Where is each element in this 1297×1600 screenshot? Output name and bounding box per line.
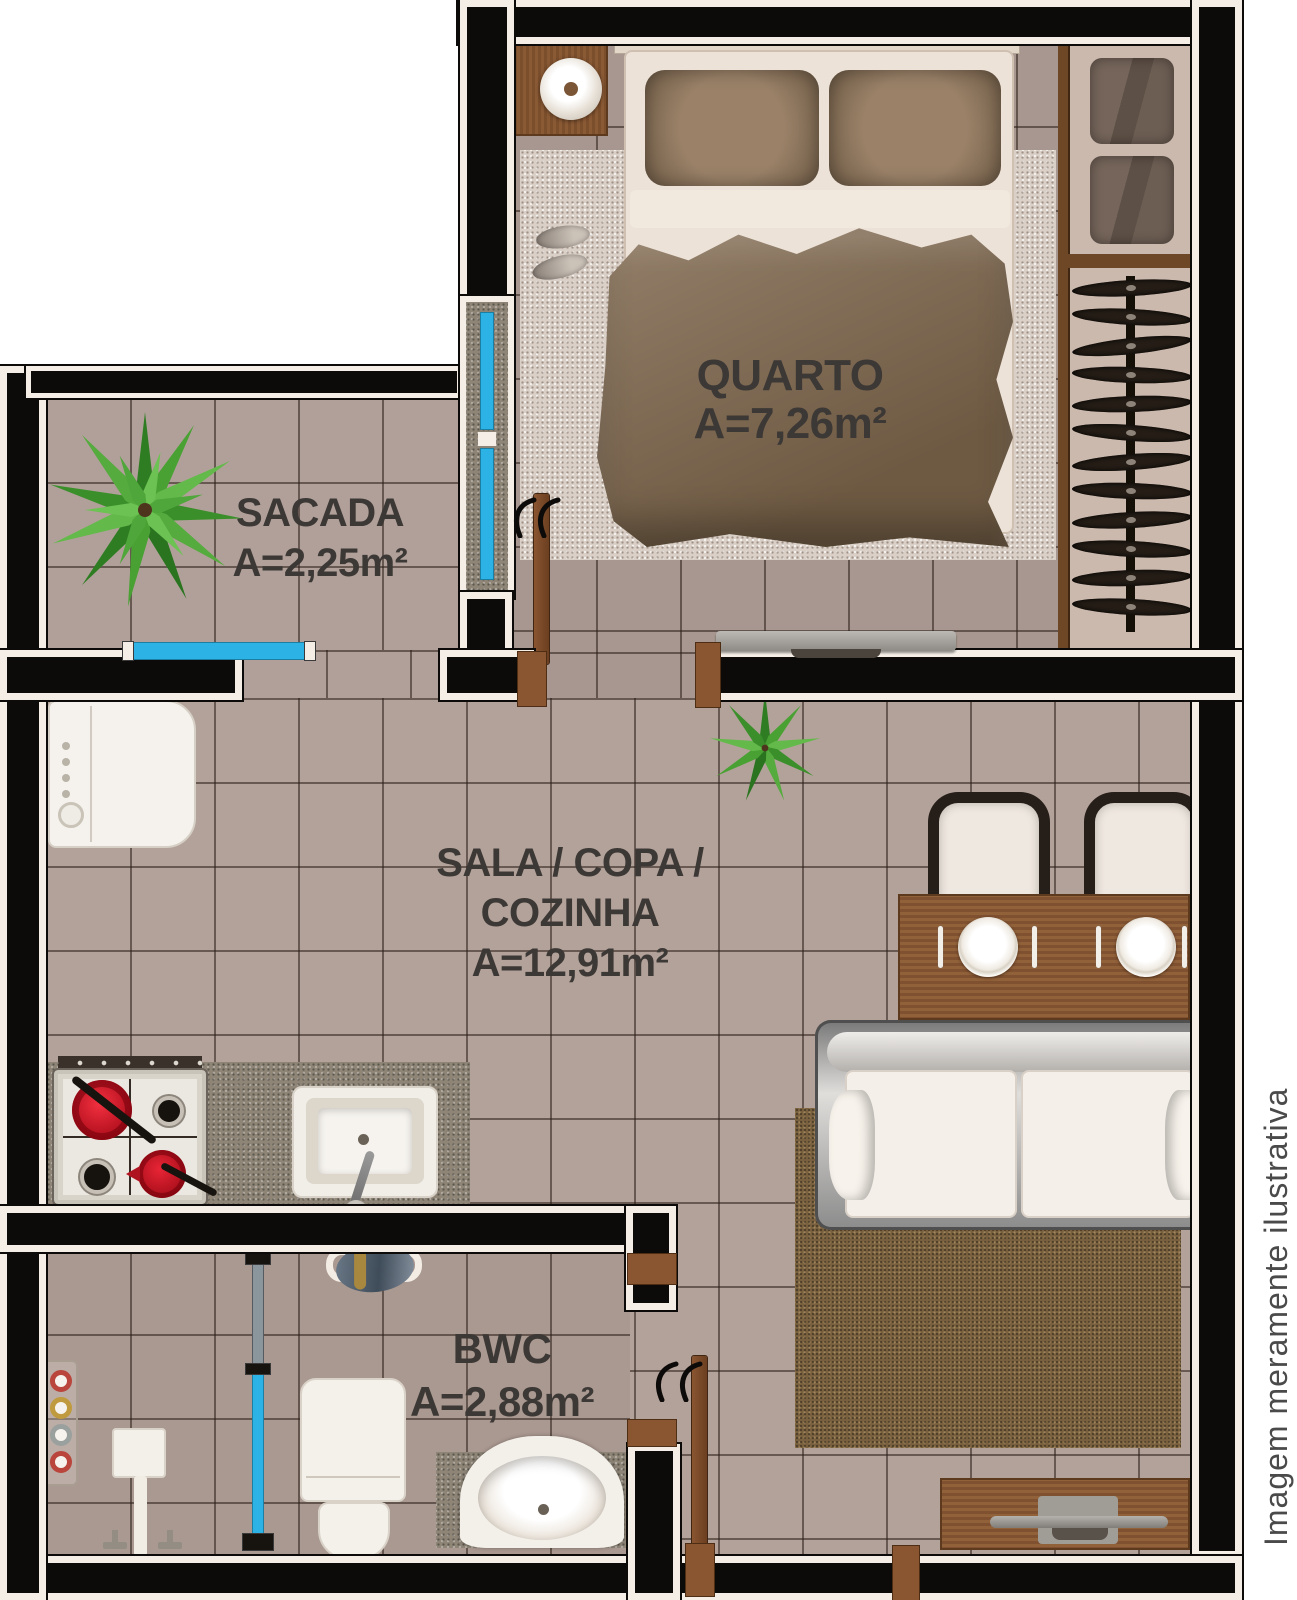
- fork-icon: [1182, 926, 1187, 968]
- sofa-backrest: [827, 1032, 1213, 1072]
- window-glass: [480, 312, 494, 430]
- wall-top: [458, 0, 1242, 44]
- glass-door-cap: [123, 642, 133, 660]
- door-jamb: [696, 643, 720, 707]
- sacada-label: SACADA A=2,25m²: [170, 488, 470, 588]
- quarto-area: A=7,26m²: [630, 400, 950, 448]
- sala-name-line2: COZINHA: [400, 888, 740, 938]
- washer-dial: [62, 742, 70, 750]
- hanger-icon: [1072, 306, 1193, 328]
- shampoo-bottle-icon: [50, 1397, 72, 1419]
- basin-drain: [538, 1504, 549, 1515]
- fork-icon: [1032, 926, 1037, 968]
- towel-stripe: [354, 1250, 366, 1290]
- bed-pillow-left: [645, 70, 819, 186]
- stove-knob-strip: [58, 1056, 202, 1070]
- shampoo-bottle-icon: [50, 1451, 72, 1473]
- bathroom-door-swing-icon: [646, 1360, 704, 1402]
- partition-cap: [246, 1364, 270, 1374]
- dining-table: [898, 894, 1190, 1020]
- tv-screen: [990, 1516, 1168, 1528]
- shower-tap-icon: [103, 1542, 127, 1549]
- hanger-icon: [1072, 394, 1192, 414]
- window-glass: [480, 448, 494, 580]
- tv-base: [1052, 1528, 1108, 1540]
- knife-icon: [938, 926, 943, 968]
- bwc-label: BWC A=2,88m²: [392, 1322, 612, 1428]
- toilet-seam: [306, 1476, 400, 1478]
- balcony-glass-door: [123, 642, 315, 660]
- hanger-icon: [1072, 277, 1193, 299]
- door-jamb: [628, 1254, 676, 1284]
- bwc-area: A=2,88m²: [392, 1375, 612, 1428]
- kitchen-sink: [292, 1086, 438, 1198]
- washer-dial: [62, 774, 70, 782]
- wall-sala-bwc: [0, 1206, 670, 1252]
- bedroom-door-swing-icon: [504, 496, 562, 538]
- plate-icon: [1116, 917, 1176, 977]
- hanger-icon: [1072, 596, 1193, 618]
- hanger-icon: [1072, 509, 1193, 531]
- door-jamb: [686, 1544, 714, 1596]
- sink-drain: [358, 1134, 369, 1145]
- wall-sacada-top: [26, 366, 462, 398]
- toilet-tank: [300, 1378, 406, 1502]
- watermark-text: Imagem meramente ilustrativa: [1258, 946, 1295, 1546]
- sofa: [815, 1020, 1225, 1230]
- door-jamb: [893, 1546, 919, 1600]
- bwc-name: BWC: [392, 1322, 612, 1375]
- wardrobe: [1058, 26, 1206, 662]
- wall-bottom: [0, 1556, 1242, 1600]
- glass-door-cap: [305, 642, 315, 660]
- door-jamb: [518, 652, 546, 706]
- washer-dial: [62, 758, 70, 766]
- burner-icon: [154, 1096, 184, 1126]
- pot-handle: [71, 1075, 158, 1145]
- tv-mount: [791, 649, 881, 658]
- wall-left: [0, 366, 46, 1600]
- potted-plant-icon: [705, 688, 825, 808]
- partition-cap: [246, 1252, 270, 1264]
- bedroom-wall-tv: [716, 631, 956, 651]
- washing-machine: [48, 700, 196, 848]
- bathroom-basin: [478, 1456, 606, 1540]
- nightstand: [506, 40, 608, 136]
- bed-pillow-right: [829, 70, 1001, 186]
- wall-right: [1192, 0, 1242, 1558]
- hanger-icon: [1072, 365, 1192, 385]
- hanger-icon: [1072, 538, 1193, 560]
- window-mullion: [478, 432, 496, 446]
- hanger-icon: [1072, 481, 1192, 501]
- shower-partition-frame: [252, 1260, 264, 1368]
- stove: [54, 1070, 206, 1204]
- folded-shirt-icon: [1090, 58, 1174, 144]
- floor-plan: QUARTO A=7,26m² SACADA A=2,25m² SALA / C…: [0, 0, 1297, 1600]
- kettle-icon: [138, 1150, 186, 1198]
- sofa-pillow: [829, 1090, 875, 1200]
- shower-arm: [134, 1476, 147, 1556]
- wardrobe-divider: [1066, 254, 1198, 268]
- folded-shirt-icon: [1090, 156, 1174, 244]
- shower-head: [112, 1428, 166, 1478]
- bed-sheet-fold: [630, 190, 1010, 228]
- sala-area: A=12,91m²: [400, 938, 740, 988]
- sacada-area: A=2,25m²: [170, 538, 470, 588]
- tv-stand: [940, 1478, 1190, 1550]
- knife-icon: [1096, 926, 1101, 968]
- washer-knob: [58, 802, 84, 828]
- shower-shelf: [42, 1360, 78, 1486]
- sacada-name: SACADA: [170, 488, 470, 538]
- hanger-icon: [1072, 568, 1192, 588]
- washer-panel-line: [90, 706, 92, 842]
- wall-quarto-left: [460, 0, 514, 304]
- shampoo-bottle-icon: [50, 1370, 72, 1392]
- wall-quarto-bottom: [698, 650, 1242, 700]
- shower-tap-icon: [158, 1542, 182, 1549]
- pot-icon: [72, 1080, 132, 1140]
- burner-icon: [80, 1160, 114, 1194]
- shower-glass-partition: [252, 1372, 264, 1536]
- sala-label: SALA / COPA / COZINHA A=12,91m²: [400, 838, 740, 988]
- sala-name-line1: SALA / COPA /: [400, 838, 740, 888]
- door-jamb: [628, 1420, 676, 1446]
- table-lamp-icon: [540, 58, 602, 120]
- quarto-label: QUARTO A=7,26m²: [630, 352, 950, 448]
- partition-foot: [243, 1534, 273, 1550]
- shampoo-bottle-icon: [50, 1424, 72, 1446]
- washer-dial: [62, 790, 70, 798]
- kettle-spout: [126, 1166, 140, 1182]
- wall-bwc-stub-bottom: [628, 1444, 680, 1600]
- toilet-bowl: [318, 1502, 390, 1560]
- quarto-name: QUARTO: [630, 352, 950, 400]
- plate-icon: [958, 917, 1018, 977]
